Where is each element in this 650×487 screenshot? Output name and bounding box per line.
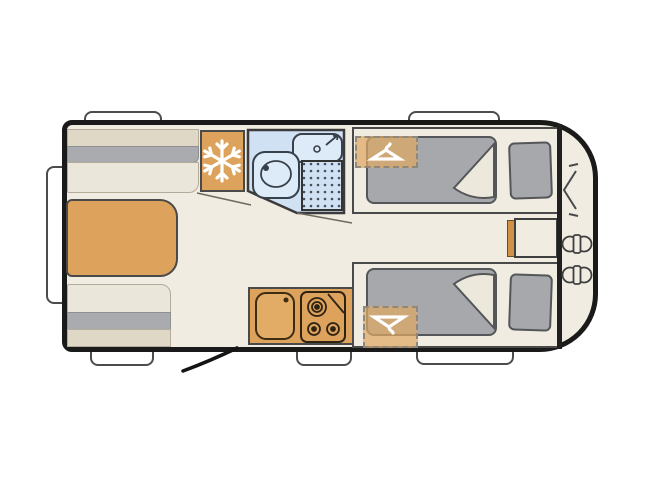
bed-top-pillow (508, 141, 553, 199)
caravan-floorplan (0, 0, 650, 487)
dinette-bottom-shelf (67, 329, 171, 347)
bed-bottom-pillow (508, 273, 553, 331)
bedside-cabinet (514, 218, 558, 258)
dinette-table (66, 199, 178, 277)
dinette-top-seat (67, 162, 199, 193)
dinette-top-shelf (67, 129, 199, 147)
refrigerator (200, 130, 245, 192)
dinette-top-backrest (67, 146, 199, 163)
dinette-bottom-backrest (67, 312, 171, 330)
wardrobe-bottom (363, 306, 418, 348)
front-bulkhead-wall (557, 124, 562, 349)
wardrobe-top (355, 136, 418, 168)
dinette-bottom-seat (67, 284, 171, 313)
